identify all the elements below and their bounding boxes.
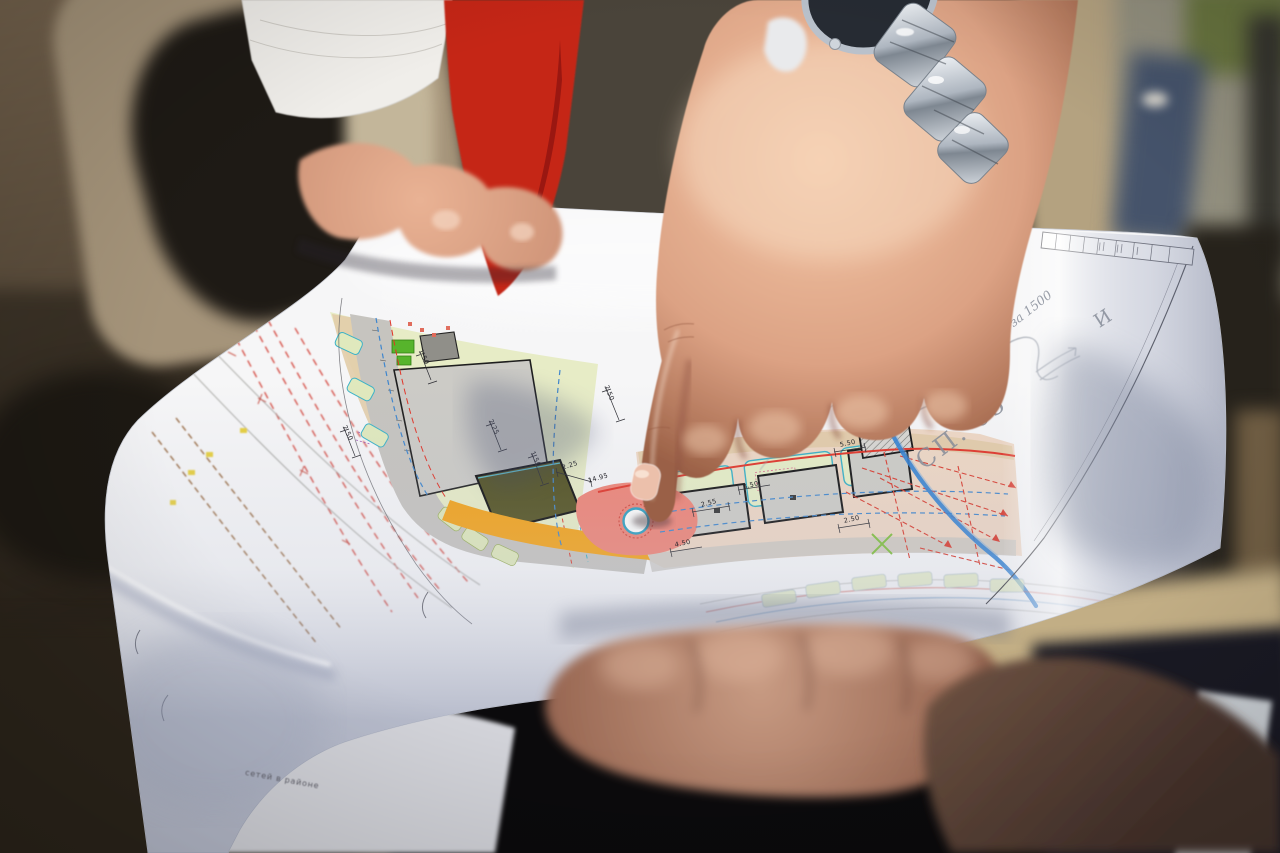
photo-scene: 2.25 14.95 2.55 2.50 5.50 1.50 2.50 4.50… xyxy=(0,0,1280,853)
bottom-knuckle-1 xyxy=(600,641,680,689)
fist-shadow-on-plan xyxy=(466,380,600,490)
hands-layer xyxy=(0,0,1280,853)
forearm-bottom-right xyxy=(924,657,1280,853)
bottom-knuckle-4 xyxy=(905,638,975,682)
band-glint-1 xyxy=(896,28,914,36)
watch-crown xyxy=(830,39,841,50)
knuckle-highlight-4 xyxy=(923,391,967,421)
left-hand-group xyxy=(242,0,584,296)
knuckle-highlight-3 xyxy=(836,395,888,429)
band-glint-3 xyxy=(954,126,970,134)
fingernail-glint xyxy=(635,470,649,478)
left-finger-highlight-1 xyxy=(432,210,460,230)
band-glint-2 xyxy=(928,76,944,84)
left-finger-highlight-2 xyxy=(510,223,534,241)
knuckle-highlight-2 xyxy=(749,411,801,445)
bottom-knuckle-3 xyxy=(805,624,895,676)
hand-shadow-right-curl xyxy=(1047,340,1212,569)
bottom-knuckle-2 xyxy=(695,629,785,681)
knuckle-highlight-1 xyxy=(683,425,727,455)
pointing-hand-group xyxy=(629,0,1078,522)
white-sheets-stack xyxy=(242,0,452,118)
